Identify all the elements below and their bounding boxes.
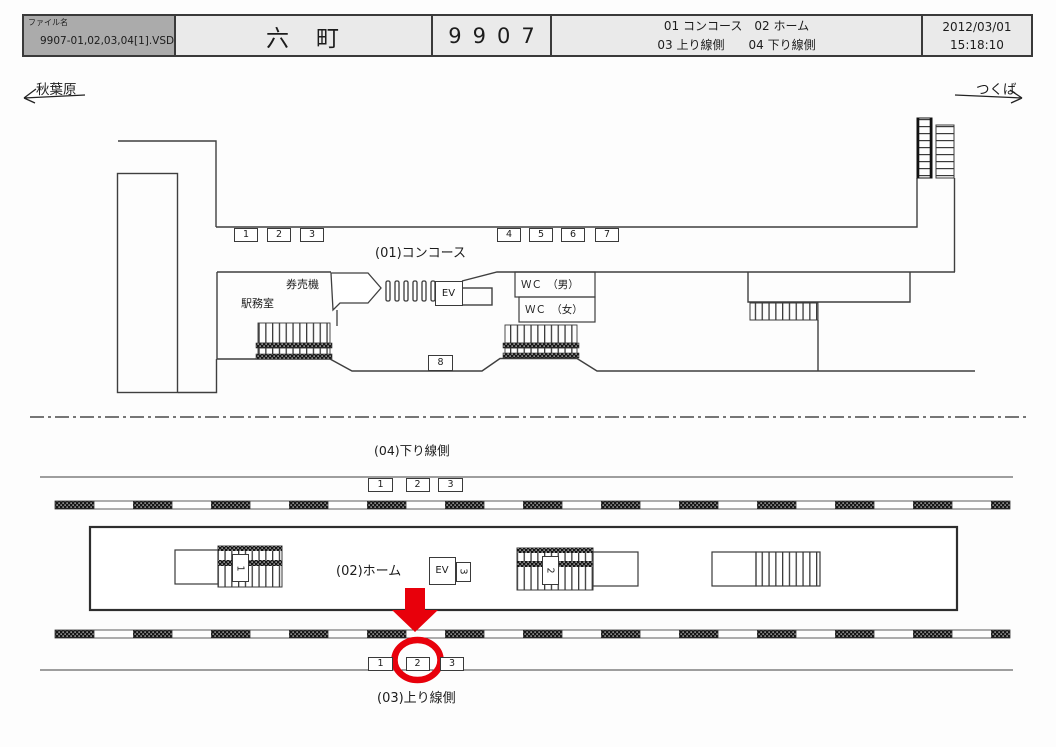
ticket-gates [386,281,435,301]
up-track-hatched-band [55,630,1010,638]
concourse-sign-1: 1 [234,228,258,242]
platform-elevator: EV [429,557,456,585]
ticket-machines-label: 券売機 [286,276,319,292]
concourse-title: (01)コンコース [375,242,466,261]
platform-stair-sign-2-text: 2 [545,567,556,573]
time-value: 15:18:10 [950,36,1004,54]
datetime-cell: 2012/03/01 15:18:10 [921,16,1031,55]
wc-men-label: ＷＣ （男） [521,277,579,292]
platform-stairs-right [712,552,820,586]
platform-stair-sign-2: 2 [542,556,559,585]
platform-stair-sign-1-text: 1 [234,565,245,571]
ticket-booth-shape [331,273,381,326]
up-sign-3: 3 [440,657,464,671]
platform-stair-sign-3-text: 3 [457,568,468,574]
up-sign-2-highlighted: 2 [406,657,430,671]
down-sign-2: 2 [406,478,430,492]
platform-stair-sign-1: 1 [232,554,249,582]
station-office-label: 駅務室 [241,295,274,311]
down-track-hatched-band [55,501,1010,509]
concourse-sign-3: 3 [300,228,324,242]
up-line-title: (03)上り線側 [377,687,456,706]
platform-stairs-left [175,546,282,587]
up-sign-1: 1 [368,657,393,671]
exterior-stairs-topright [917,118,954,178]
legend-line2: 03 上り線側 04 下り線側 [657,36,815,55]
concourse-sign-4: 4 [497,228,521,242]
filename-label: ファイル名 [28,17,68,28]
diagram-number: 9907 [431,16,550,55]
concourse-elevator: EV [435,281,463,306]
legend-cell: 01 コンコース 02 ホーム 03 上り線側 04 下り線側 [550,16,921,55]
date-value: 2012/03/01 [942,18,1011,36]
concourse-stairs-left [256,323,332,359]
down-sign-3: 3 [438,478,463,492]
concourse-sign-8: 8 [428,355,453,371]
down-sign-1: 1 [368,478,393,492]
concourse-sign-5: 5 [529,228,553,242]
floorplan-linework [0,0,1056,747]
concourse-stairs-middle [503,325,579,358]
down-line-title: (04)下り線側 [374,440,450,459]
title-block: ファイル名 9907-01,02,03,04[1].VSD 六 町 9907 0… [22,14,1033,57]
platform-stairs-middle [517,548,638,590]
wc-women-label: ＷＣ （女） [525,302,583,317]
concourse-sign-6: 6 [561,228,585,242]
filename-value: 9907-01,02,03,04[1].VSD [40,35,174,47]
legend-line1: 01 コンコース 02 ホーム [664,17,809,36]
platform-stair-sign-3: 3 [456,562,471,582]
station-name: 六 町 [174,16,431,55]
concourse-sign-7: 7 [595,228,619,242]
direction-right-tsukuba: つくば [976,78,1017,98]
concourse-stairs-right [750,303,818,320]
direction-left-akihabara: 秋葉原 [36,78,77,98]
station-sign-location-diagram: { "header": { "file_label": "ファイル名", "fi… [0,0,1056,747]
filename-cell: ファイル名 9907-01,02,03,04[1].VSD [24,16,174,55]
platform-title: (02)ホーム [336,560,401,579]
concourse-sign-2: 2 [267,228,291,242]
